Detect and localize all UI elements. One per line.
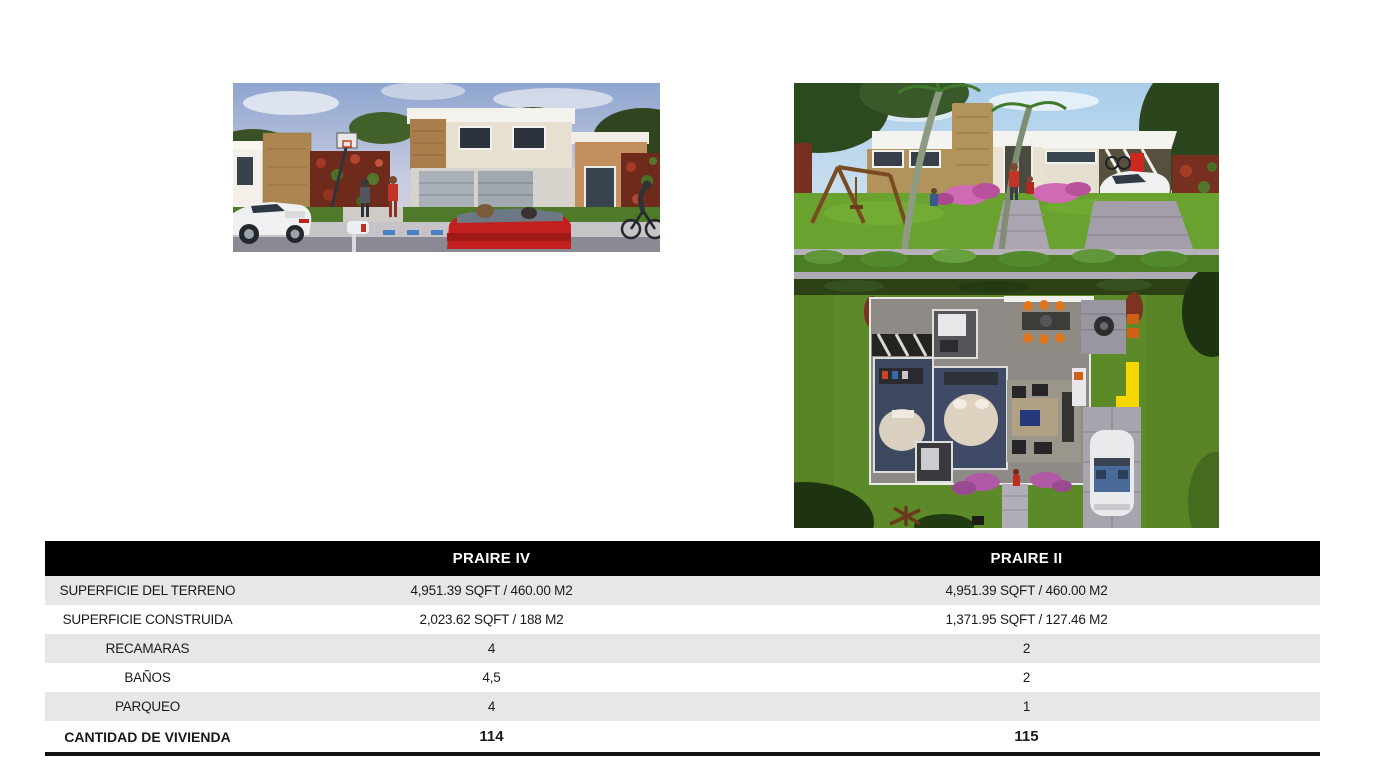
cell-value: 4,5 <box>250 670 733 685</box>
table-row: SUPERFICIE DEL TERRENO 4,951.39 SQFT / 4… <box>45 576 1320 605</box>
table-row: PARQUEO 4 1 <box>45 692 1320 721</box>
cell-value: 4 <box>250 699 733 714</box>
comparison-table: PRAIRE IV PRAIRE II SUPERFICIE DEL TERRE… <box>45 541 1320 756</box>
header-praire-iv: PRAIRE IV <box>250 550 733 567</box>
cell-value: 4,951.39 SQFT / 460.00 M2 <box>733 583 1320 598</box>
cell-value: 1 <box>733 699 1320 714</box>
cell-value: 4,951.39 SQFT / 460.00 M2 <box>250 583 733 598</box>
row-label: PARQUEO <box>45 699 250 714</box>
table-header-row: PRAIRE IV PRAIRE II <box>45 541 1320 576</box>
cell-value: 2,023.62 SQFT / 188 M2 <box>250 612 733 627</box>
table-total-row: CANTIDAD DE VIVIENDA 114 115 <box>45 721 1320 752</box>
row-label: BAÑOS <box>45 670 250 685</box>
row-label: SUPERFICIE CONSTRUIDA <box>45 612 250 627</box>
cell-value: 114 <box>250 728 733 745</box>
table-row: BAÑOS 4,5 2 <box>45 663 1320 692</box>
praire-ii-aerial-illustration <box>794 272 1219 528</box>
header-praire-ii: PRAIRE II <box>733 550 1320 567</box>
praire-iv-street-render <box>233 83 660 252</box>
cell-value: 115 <box>733 728 1320 745</box>
praire-iv-illustration <box>233 83 660 252</box>
row-label: CANTIDAD DE VIVIENDA <box>45 729 250 745</box>
table-row: RECAMARAS 4 2 <box>45 634 1320 663</box>
cell-value: 4 <box>250 641 733 656</box>
cell-value: 2 <box>733 641 1320 656</box>
table-row: SUPERFICIE CONSTRUIDA 2,023.62 SQFT / 18… <box>45 605 1320 634</box>
cell-value: 2 <box>733 670 1320 685</box>
page: PRAIRE IV PRAIRE II SUPERFICIE DEL TERRE… <box>0 0 1387 780</box>
row-label: RECAMARAS <box>45 641 250 656</box>
white-car-topview <box>1090 430 1134 516</box>
row-label: SUPERFICIE DEL TERRENO <box>45 583 250 598</box>
cell-value: 1,371.95 SQFT / 127.46 M2 <box>733 612 1320 627</box>
praire-ii-street-illustration <box>794 83 1219 272</box>
praire-ii-render <box>794 83 1219 528</box>
